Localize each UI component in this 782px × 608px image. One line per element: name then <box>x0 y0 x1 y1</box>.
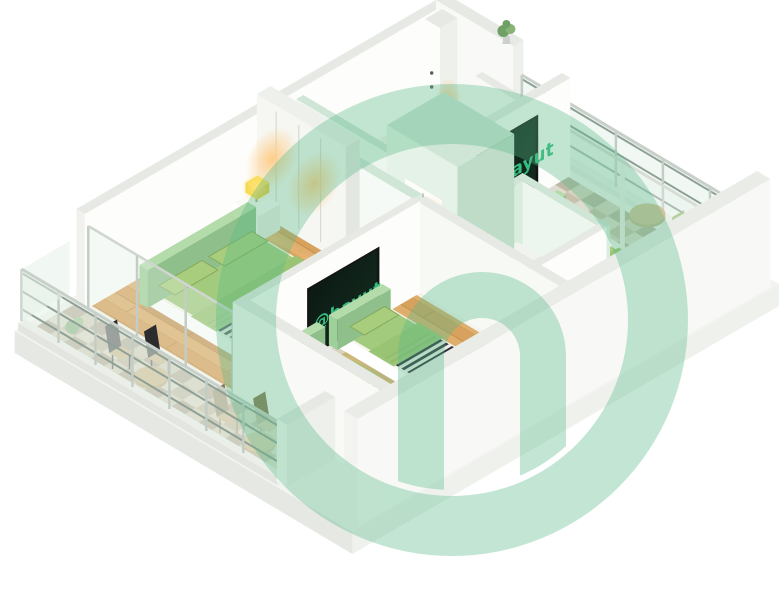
twin-bed-2-headboard-front <box>329 315 337 350</box>
floorplan-image: @bayut@bayut <box>0 0 782 608</box>
plant-pot <box>502 36 510 44</box>
nw-outer-wall-front <box>76 209 84 310</box>
plant-leaves <box>502 20 510 28</box>
column-knob <box>430 71 433 74</box>
floorplan-render: @bayut@bayut <box>0 0 782 608</box>
